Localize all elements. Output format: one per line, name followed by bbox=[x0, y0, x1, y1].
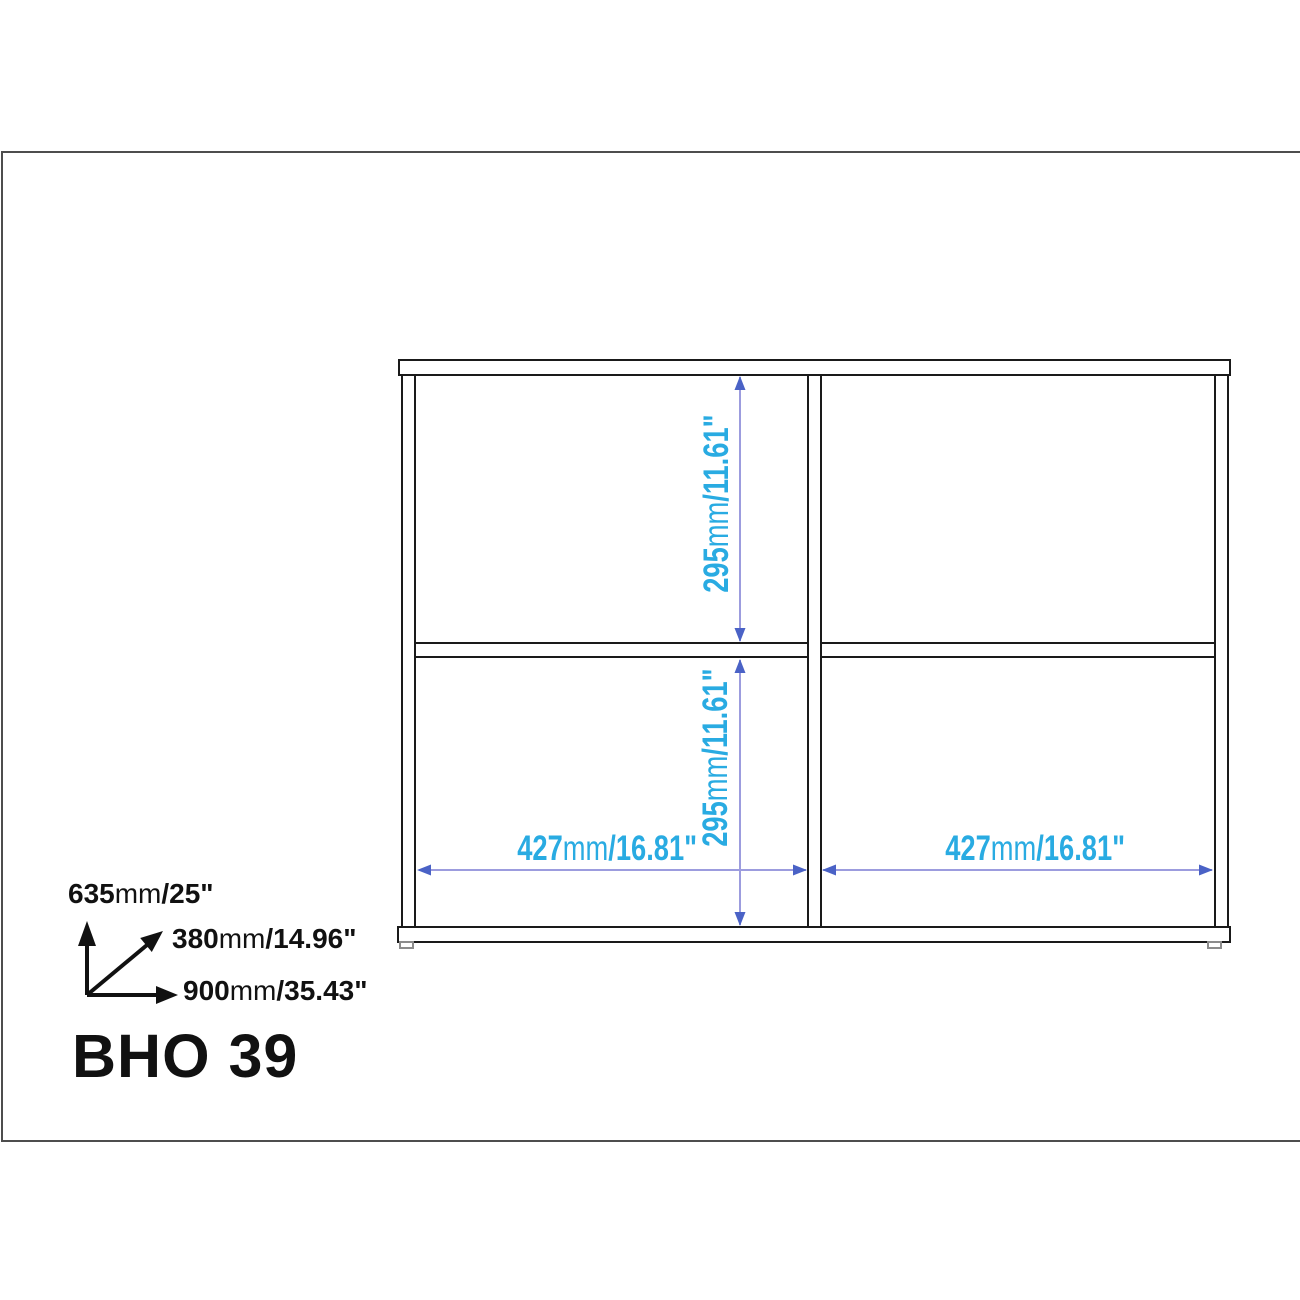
middle-shelf-left bbox=[415, 643, 808, 657]
dim-value: 427 bbox=[517, 829, 563, 868]
dim-label-top-cell-height: 295mm/11.61" bbox=[698, 421, 736, 593]
axis-label-width: 900mm/35.43" bbox=[183, 975, 368, 1007]
furniture-dimension-diagram: 295mm/11.61" 295mm/11.61" 427mm/16.81" 4… bbox=[0, 0, 1300, 1300]
axis-line-depth bbox=[87, 945, 147, 995]
dim-inches: /16.81" bbox=[1036, 829, 1125, 868]
dim-unit: mm bbox=[230, 975, 277, 1006]
bottom-board bbox=[398, 927, 1230, 942]
diagram-drawing bbox=[0, 0, 1300, 1300]
arrow-right-icon bbox=[156, 986, 178, 1004]
dim-value: 295 bbox=[696, 801, 735, 847]
dim-value: 380 bbox=[172, 923, 219, 954]
dim-unit: mm bbox=[991, 829, 1036, 868]
dim-inches: /35.43" bbox=[276, 975, 367, 1006]
axis-label-depth: 380mm/14.96" bbox=[172, 923, 357, 955]
arrow-up-icon bbox=[78, 921, 96, 946]
dim-unit: mm bbox=[696, 756, 735, 801]
arrowhead-icon bbox=[417, 865, 431, 876]
top-board bbox=[399, 360, 1230, 375]
dim-label-right-cell-width: 427mm/16.81" bbox=[945, 830, 1117, 868]
arrowhead-icon bbox=[735, 376, 746, 390]
right-side-panel bbox=[1215, 375, 1228, 927]
arrowhead-icon bbox=[735, 659, 746, 673]
arrowhead-icon bbox=[822, 865, 836, 876]
dim-value: 427 bbox=[945, 829, 991, 868]
arrowhead-icon bbox=[793, 865, 807, 876]
axis-indicator bbox=[78, 921, 178, 1004]
center-divider bbox=[808, 375, 821, 927]
dim-value: 900 bbox=[183, 975, 230, 1006]
model-number: BHO 39 bbox=[72, 1026, 298, 1087]
dim-value: 295 bbox=[697, 547, 736, 593]
dim-inches: /16.81" bbox=[608, 829, 697, 868]
dim-unit: mm bbox=[115, 878, 162, 909]
axis-label-height: 635mm/25" bbox=[68, 878, 214, 910]
dim-inches: /11.61" bbox=[696, 668, 735, 755]
arrowhead-icon bbox=[735, 628, 746, 642]
dim-unit: mm bbox=[219, 923, 266, 954]
middle-shelf-right bbox=[821, 643, 1215, 657]
right-foot bbox=[1208, 942, 1221, 948]
dim-label-left-cell-width: 427mm/16.81" bbox=[517, 830, 689, 868]
dim-inches: /11.61" bbox=[697, 414, 736, 501]
dim-unit: mm bbox=[563, 829, 608, 868]
dim-unit: mm bbox=[697, 502, 736, 547]
dim-value: 635 bbox=[68, 878, 115, 909]
dim-label-bottom-cell-height: 295mm/11.61" bbox=[697, 675, 735, 847]
arrowhead-icon bbox=[735, 912, 746, 926]
left-foot bbox=[400, 942, 413, 948]
dim-inches: /25" bbox=[161, 878, 213, 909]
arrowhead-icon bbox=[1199, 865, 1213, 876]
axis-lines bbox=[87, 945, 157, 995]
left-side-panel bbox=[402, 375, 415, 927]
dim-inches: /14.96" bbox=[265, 923, 356, 954]
